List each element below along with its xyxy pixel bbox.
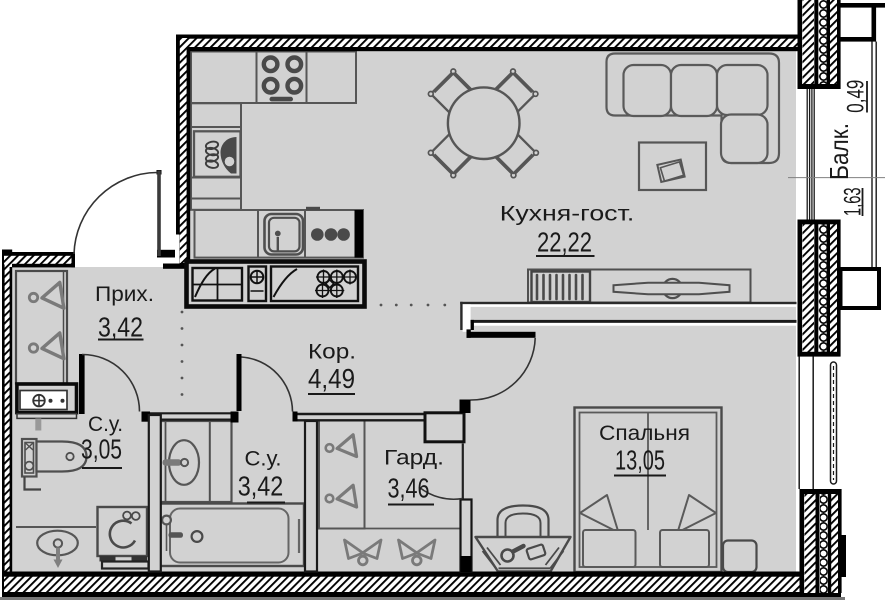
svg-text:С.у.: С.у. [88,412,123,436]
svg-text:Спальня: Спальня [599,421,690,445]
svg-text:3,42: 3,42 [98,312,143,343]
svg-text:Кухня-гост.: Кухня-гост. [500,202,635,226]
svg-text:13,05: 13,05 [615,445,665,476]
svg-text:0,49: 0,49 [843,80,870,113]
svg-text:3,46: 3,46 [388,473,430,504]
svg-text:Прих.: Прих. [95,282,154,306]
svg-text:22,22: 22,22 [537,227,592,258]
svg-text:Гард.: Гард. [384,446,444,470]
svg-text:4,49: 4,49 [308,363,355,394]
svg-text:С.у.: С.у. [245,447,282,471]
svg-text:Балк.: Балк. [824,123,854,180]
svg-text:Кор.: Кор. [308,340,356,364]
svg-text:3,05: 3,05 [81,434,122,465]
svg-text:3,42: 3,42 [238,471,284,502]
